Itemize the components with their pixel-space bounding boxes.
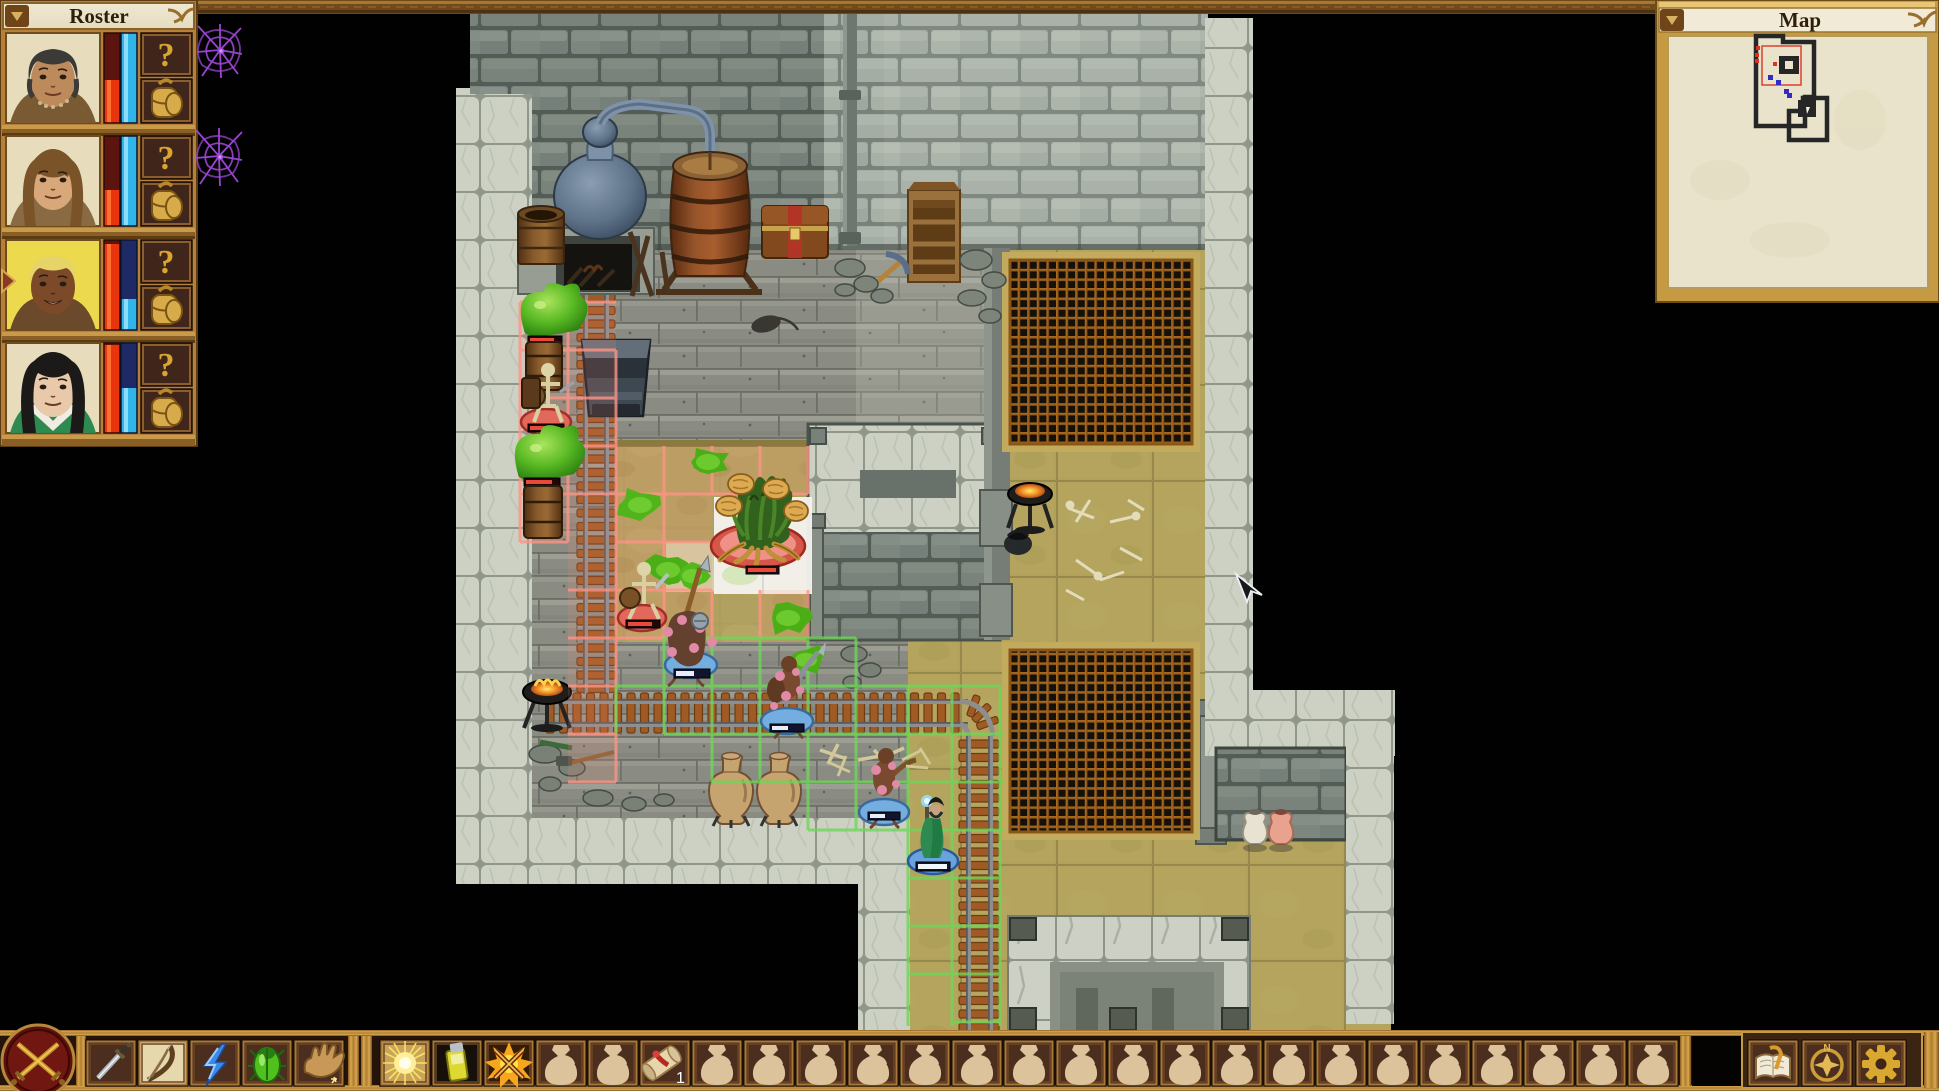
svg-text:?: ? <box>158 244 175 281</box>
svg-text:?: ? <box>158 347 175 384</box>
svg-text:Roster: Roster <box>69 4 128 28</box>
svg-text:N: N <box>1823 1043 1830 1054</box>
svg-text:Map: Map <box>1779 8 1821 32</box>
svg-text:1: 1 <box>676 1070 685 1087</box>
svg-text:?: ? <box>158 37 175 74</box>
svg-text:?: ? <box>158 140 175 177</box>
